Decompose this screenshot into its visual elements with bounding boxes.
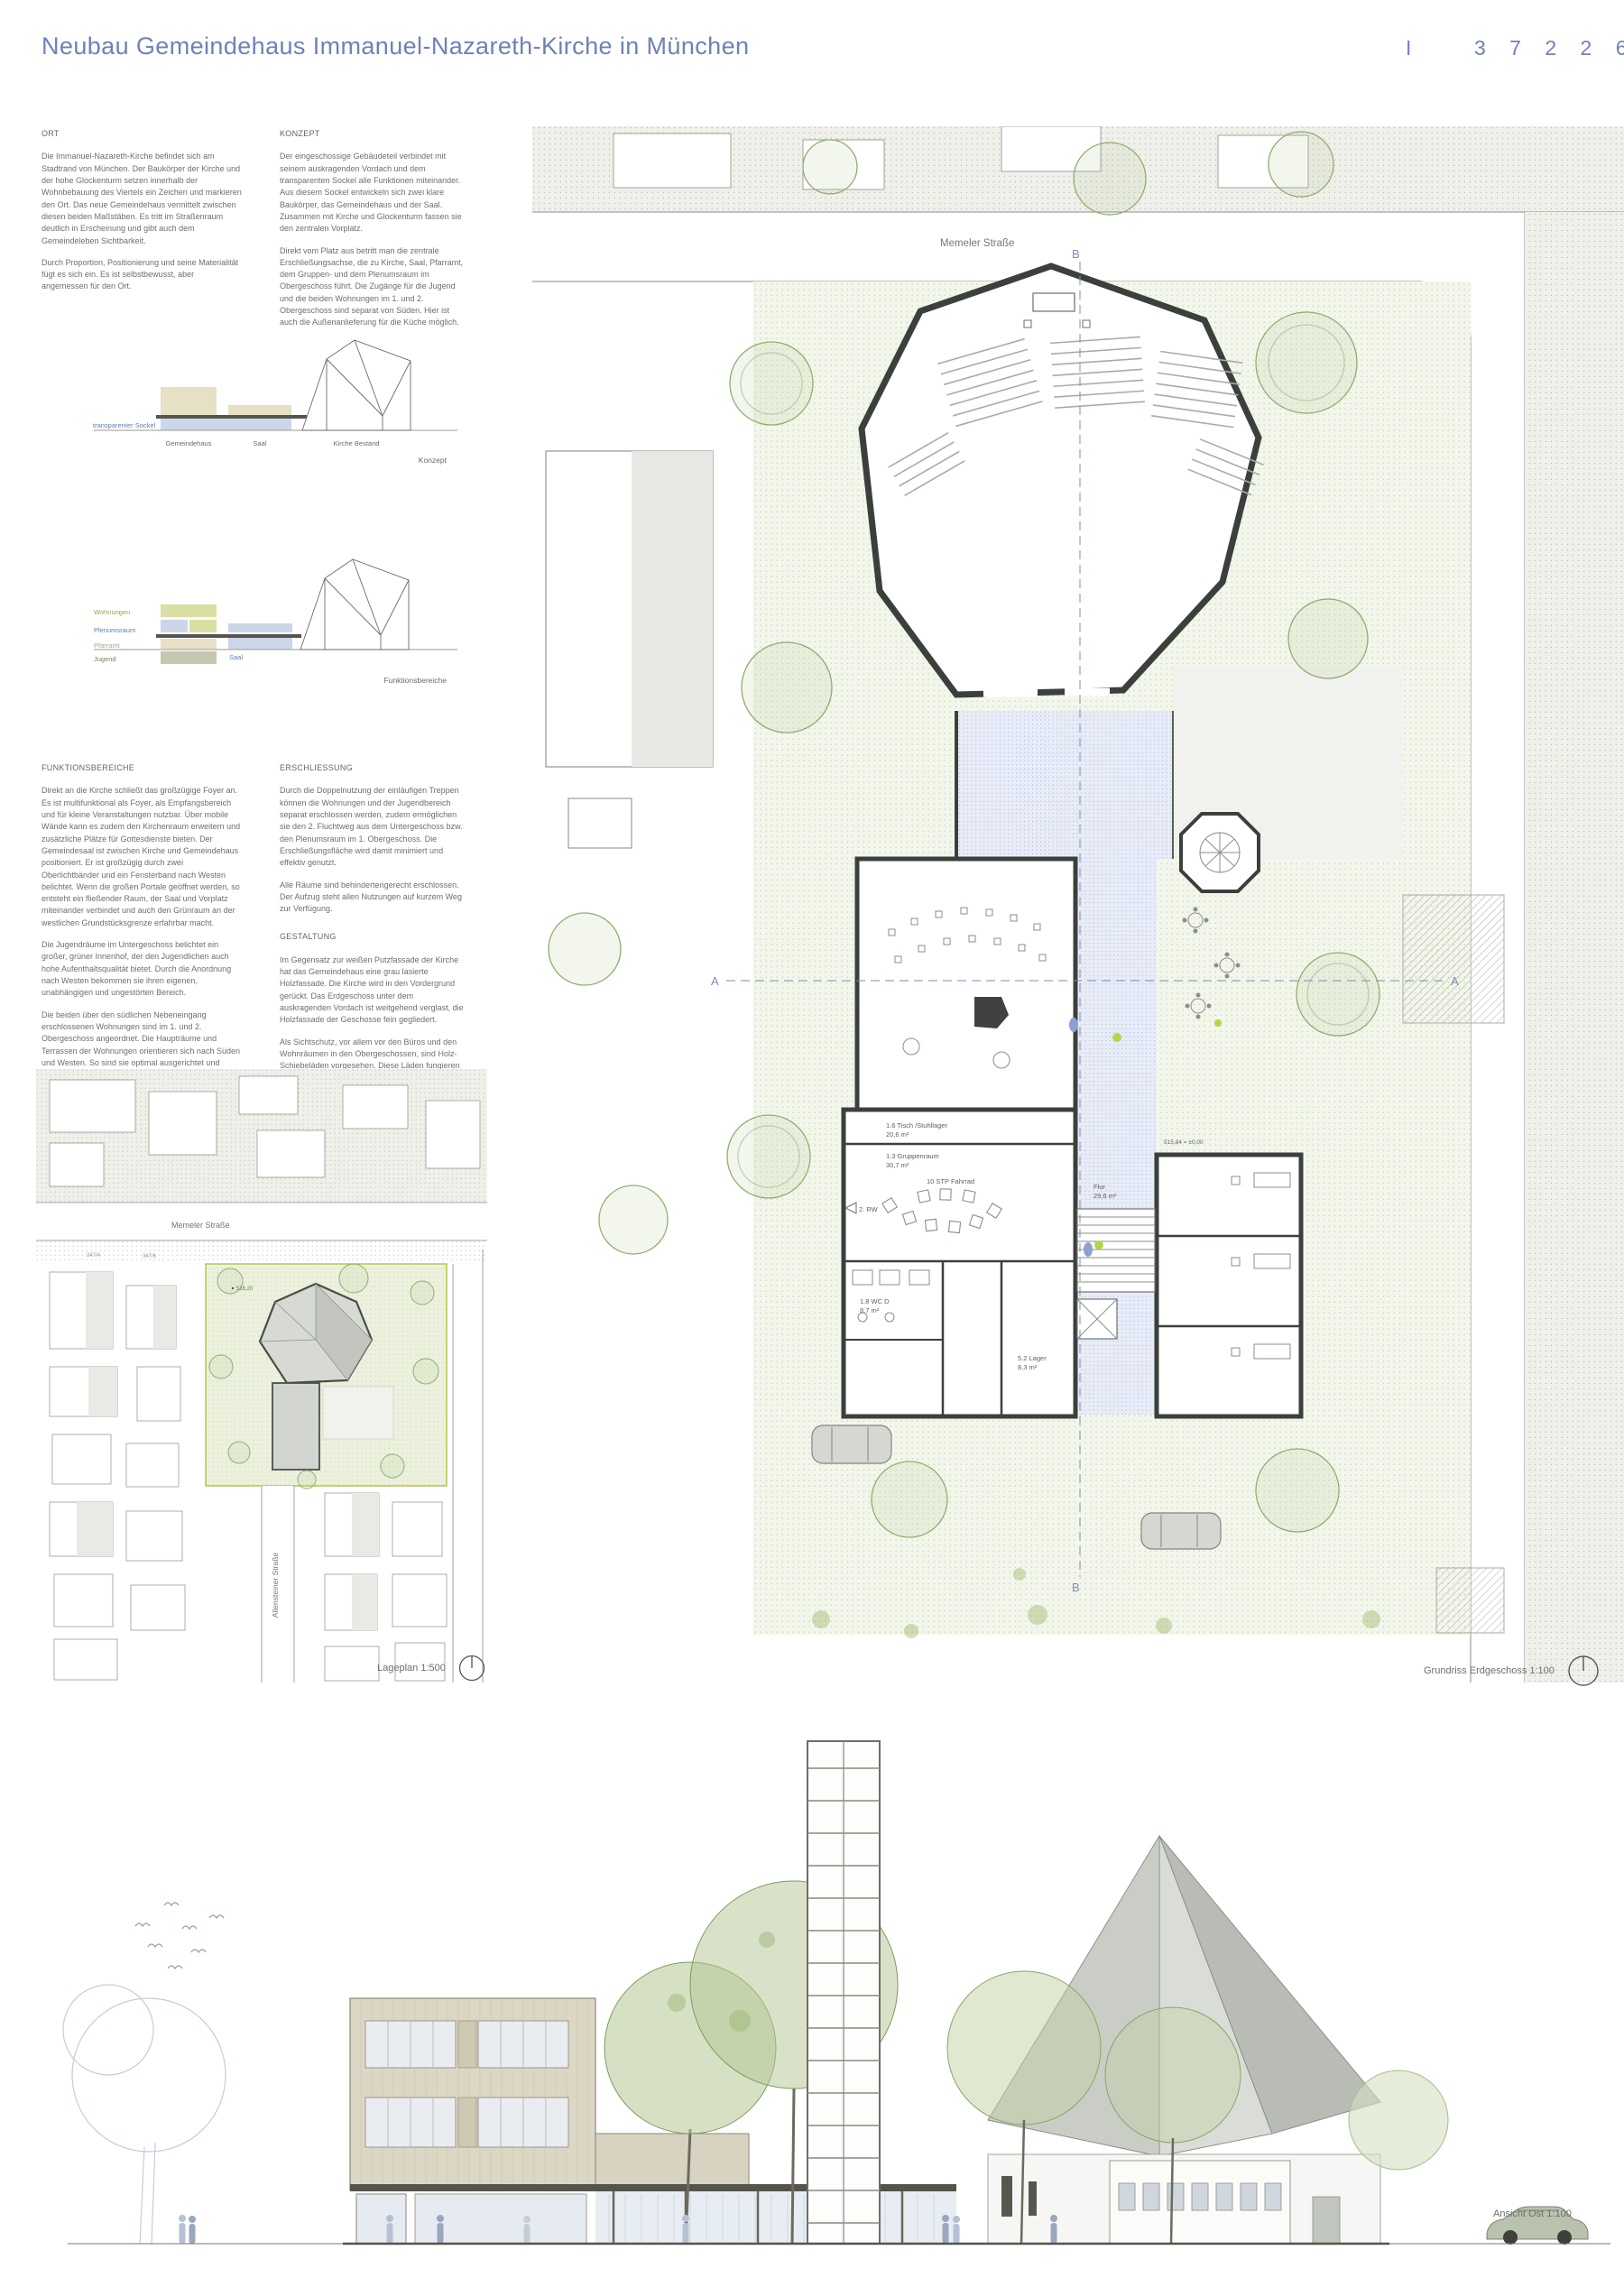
text-column-konzept: KONZEPT Der eingeschossige Gebäudeteil v… bbox=[280, 128, 465, 339]
sockel-block bbox=[161, 419, 291, 430]
diagram-caption-funktionsbereiche: Funktionsbereiche bbox=[384, 676, 448, 685]
label-gruppenraum-area: 30,7 m² bbox=[886, 1161, 909, 1169]
erschliessung-paragraph-2: Alle Räume sind behindertengerecht ersch… bbox=[280, 880, 465, 916]
diagram-konzept: transparenter Sockel Gemeindehaus Saal K… bbox=[86, 329, 465, 465]
section-a-left: A bbox=[711, 974, 719, 988]
funktionsbereiche-paragraph-2: Die Jugendräume im Untergeschoss belicht… bbox=[42, 939, 242, 1000]
shutter bbox=[458, 2021, 476, 2068]
page-title: Neubau Gemeindehaus Immanuel-Nazareth-Ki… bbox=[42, 32, 749, 60]
entry-number: 3 7 2 2 6 5 bbox=[1474, 36, 1624, 60]
text-column-erschliessung: ERSCHLIESSUNG Durch die Doppelnutzung de… bbox=[280, 762, 465, 1119]
site-plan: Memeler Straße 347/4 347/6 516,20 bbox=[36, 1069, 487, 1683]
label-pfarramt: Pfarramt bbox=[94, 641, 121, 650]
konzept-paragraph-2: Direkt vom Platz aus betritt man die zen… bbox=[280, 245, 465, 329]
text-column-funktionsbereiche: FUNKTIONSBEREICHE Direkt an die Kirche s… bbox=[42, 762, 242, 1092]
label-gemeindehaus: Gemeindehaus bbox=[166, 439, 212, 447]
saal-upper-block bbox=[228, 623, 292, 632]
elevation-caption-text: Ansicht Ost 1:100 bbox=[1493, 2208, 1572, 2219]
site-street-north-label: Memeler Straße bbox=[171, 1221, 230, 1230]
gestaltung-paragraph-1: Im Gegensatz zur weißen Putzfassade der … bbox=[280, 954, 465, 1027]
ort-paragraph-1: Die Immanuel-Nazareth-Kirche befindet si… bbox=[42, 151, 242, 247]
section-a-right: A bbox=[1451, 974, 1459, 988]
heading-gestaltung: GESTALTUNG bbox=[280, 931, 465, 943]
saal-elevation bbox=[595, 2134, 749, 2185]
glockenturm bbox=[1181, 814, 1259, 891]
label-lager-area: 8,3 m² bbox=[1018, 1363, 1038, 1371]
diagram-funktionsbereiche: Wohnungen Plenumsraum Pfarramt Jugend Sa… bbox=[86, 541, 465, 699]
wohnungen-block bbox=[161, 604, 217, 617]
wohnungen-block-2 bbox=[189, 620, 217, 632]
parcel-number-1: 347/4 bbox=[87, 1253, 101, 1259]
erschliessung-paragraph-1: Durch die Doppelnutzung der einläufigen … bbox=[280, 785, 465, 869]
text-column-ort: ORT Die Immanuel-Nazareth-Kirche befinde… bbox=[42, 128, 242, 303]
kirche-outline bbox=[302, 340, 411, 430]
west-room-block bbox=[844, 1110, 1075, 1416]
parcel-number-2: 347/6 bbox=[143, 1254, 157, 1259]
jugend-block bbox=[161, 651, 217, 664]
north-arrow-icon bbox=[1565, 1653, 1601, 1689]
label-flur: Flur bbox=[1093, 1183, 1105, 1191]
funktionsbereiche-paragraph-1: Direkt an die Kirche schließt das großzü… bbox=[42, 785, 242, 929]
site-plan-caption: Lageplan 1:500 bbox=[377, 1653, 487, 1683]
label-lager: 5.2 Lager bbox=[1018, 1354, 1047, 1362]
glockenturm-elevation bbox=[807, 1741, 880, 2244]
floor-plan: Memeler Straße Allensteinerstraße bbox=[532, 126, 1624, 1683]
label-wc-area: 8,7 m² bbox=[860, 1306, 880, 1314]
heading-erschliessung: ERSCHLIESSUNG bbox=[280, 762, 465, 774]
elevation-caption: Ansicht Ost 1:100 bbox=[1493, 2208, 1572, 2219]
label-gruppenraum: 1.3 Gruppenraum bbox=[886, 1152, 939, 1160]
label-transparenter-sockel: transparenter Sockel bbox=[93, 421, 156, 429]
label-plenumsraum: Plenumsraum bbox=[94, 626, 135, 634]
gemeindehaus-elevation bbox=[350, 1998, 595, 2190]
vordach-bar bbox=[156, 415, 307, 419]
church-door bbox=[1313, 2197, 1340, 2244]
plenumsraum-block bbox=[161, 620, 188, 632]
section-b-bottom: B bbox=[1072, 1581, 1080, 1594]
kirche-outline bbox=[300, 559, 409, 650]
label-fahrrad: 10 STP Fahrrad bbox=[927, 1177, 974, 1185]
heading-ort: ORT bbox=[42, 128, 242, 140]
street-north-label: Memeler Straße bbox=[940, 238, 1014, 249]
entrance-glass bbox=[356, 2194, 406, 2244]
right-tree bbox=[1349, 2070, 1448, 2170]
label-saal: Saal bbox=[253, 439, 266, 447]
entry-mark: I bbox=[1406, 36, 1411, 60]
label-rettungsweg: 2. RW bbox=[859, 1205, 879, 1213]
saal-plan bbox=[857, 859, 1075, 1110]
label-level-note: 515,84 = ±0,00 bbox=[1164, 1139, 1204, 1146]
birds bbox=[135, 1903, 224, 1969]
background-tree bbox=[63, 1985, 226, 2244]
konzept-paragraph-1: Der eingeschossige Gebäudeteil verbindet… bbox=[280, 151, 465, 235]
hatched-parcel bbox=[1403, 895, 1504, 1023]
heading-funktionsbereiche: FUNKTIONSBEREICHE bbox=[42, 762, 242, 774]
section-b-top: B bbox=[1072, 247, 1080, 261]
saal-lower-block bbox=[228, 638, 292, 650]
shutter bbox=[458, 2098, 476, 2147]
site-street-east-label: Allensteiner Straße bbox=[271, 1553, 280, 1618]
floor-plan-caption: Grundriss Erdgeschoss 1:100 bbox=[1424, 1653, 1601, 1689]
competition-board: Neubau Gemeindehaus Immanuel-Nazareth-Ki… bbox=[0, 0, 1624, 2296]
sidewalk-band bbox=[36, 1240, 487, 1262]
vordach-bar bbox=[156, 634, 301, 638]
pfarramt-block bbox=[161, 639, 217, 650]
gemeindehaus-block bbox=[161, 387, 217, 415]
floor-plan-caption-text: Grundriss Erdgeschoss 1:100 bbox=[1424, 1665, 1555, 1676]
label-kirche-bestand: Kirche Bestand bbox=[334, 439, 380, 447]
neighbour-building bbox=[546, 451, 713, 848]
label-flur-area: 29,6 m² bbox=[1093, 1192, 1117, 1200]
label-stuhllager-area: 20,6 m² bbox=[886, 1130, 909, 1139]
saal-block bbox=[228, 405, 291, 415]
ort-paragraph-2: Durch Proportion, Positionierung und sei… bbox=[42, 257, 242, 293]
site-level-point: 516,20 bbox=[236, 1286, 254, 1292]
north-arrow-icon bbox=[457, 1653, 487, 1683]
site-plan-caption-text: Lageplan 1:500 bbox=[377, 1663, 446, 1674]
altar bbox=[1033, 293, 1075, 311]
memeler-strasse-band bbox=[36, 1203, 487, 1240]
diagram-caption-konzept: Konzept bbox=[419, 456, 448, 465]
elevation-ost bbox=[54, 1732, 1624, 2273]
heading-konzept: KONZEPT bbox=[280, 128, 465, 140]
label-jugend: Jugend bbox=[94, 655, 116, 663]
hatched-parcel-2 bbox=[1436, 1568, 1504, 1633]
label-stuhllager: 1.6 Tisch /Stuhllager bbox=[886, 1121, 947, 1130]
label-wc: 1.8 WC D bbox=[860, 1297, 890, 1305]
kirche-elevation bbox=[947, 1836, 1380, 2244]
label-saal: Saal bbox=[229, 653, 243, 661]
label-wohnungen: Wohnungen bbox=[94, 608, 130, 616]
